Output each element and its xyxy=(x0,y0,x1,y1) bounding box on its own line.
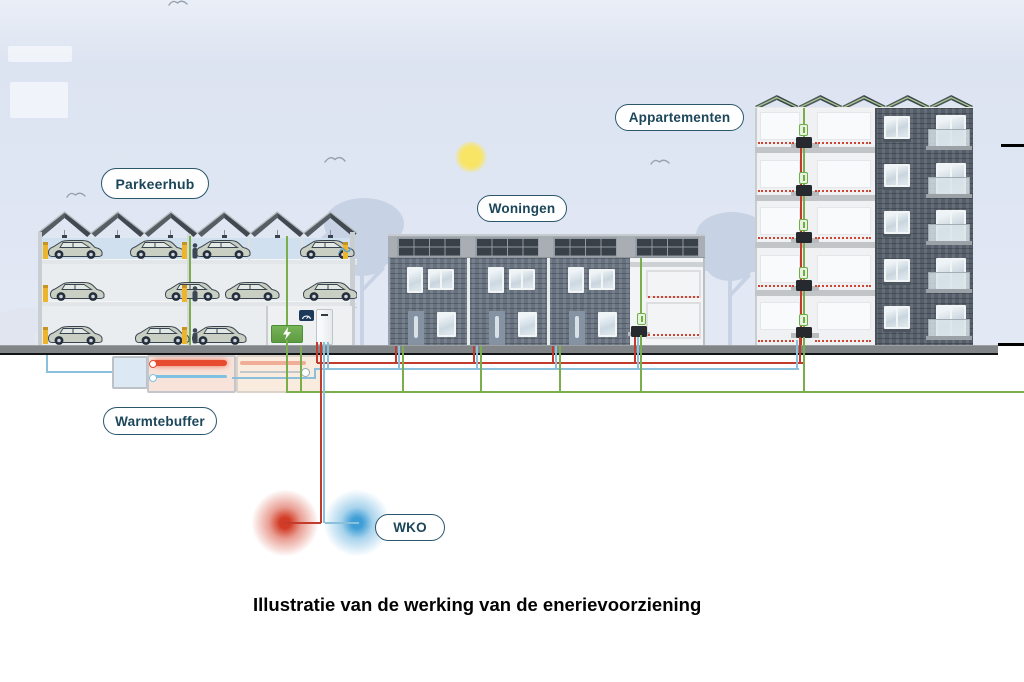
window xyxy=(407,267,423,293)
window-sill xyxy=(883,187,911,190)
label-appartementen: Appartementen xyxy=(615,104,744,131)
cold-pipe xyxy=(398,346,400,369)
solar-panel-array xyxy=(397,237,461,257)
window xyxy=(428,269,454,290)
window xyxy=(568,267,584,293)
cold-pipe xyxy=(796,340,798,369)
solar-panel-array xyxy=(475,237,539,257)
cold-pipe xyxy=(153,375,227,378)
wko-heat-pipe xyxy=(284,522,321,524)
inverter-unit xyxy=(799,314,808,326)
lightning-bolt-icon xyxy=(282,327,292,340)
ev-charger-post xyxy=(43,285,48,302)
electricity-line xyxy=(286,340,288,392)
solar-panel-array xyxy=(553,237,617,257)
balcony-railing xyxy=(928,319,970,337)
house-door xyxy=(408,311,424,345)
person-silhouette xyxy=(191,328,199,344)
wko-cold-pipe xyxy=(325,522,359,524)
heat-pipe xyxy=(473,346,475,363)
interior-window xyxy=(760,207,800,235)
gauge-icon xyxy=(301,312,312,320)
electricity-main-line xyxy=(286,391,1024,393)
heat-pipe xyxy=(316,342,318,363)
facade-edge xyxy=(875,108,877,345)
interior-window xyxy=(760,112,800,140)
caption-title: Illustratie van de werking van de enerie… xyxy=(253,594,701,616)
smart-meter-unit xyxy=(299,310,314,321)
label-parkeerhub: Parkeerhub xyxy=(101,168,209,199)
floor-heating-line xyxy=(758,142,794,144)
inverter-unit xyxy=(799,124,808,136)
label-warmtebuffer: Warmtebuffer xyxy=(103,407,217,435)
cold-pipe xyxy=(327,342,329,369)
ev-charger-post xyxy=(43,327,48,344)
cable-squiggle-icon xyxy=(338,244,352,256)
window xyxy=(884,164,910,187)
balcony-railing xyxy=(928,129,970,147)
label-parkeerhub-text: Parkeerhub xyxy=(115,176,194,192)
heat-pipe xyxy=(799,337,801,363)
floor-heating-line xyxy=(815,237,871,239)
floor-heating-line xyxy=(648,334,699,336)
interior-window xyxy=(817,255,871,283)
energy-system-diagram: Parkeerhub Woningen Appartementen Warmte… xyxy=(0,0,1024,682)
bird-icon xyxy=(66,189,88,200)
facade-edge xyxy=(388,258,390,345)
sun-icon xyxy=(455,141,487,173)
electricity-line xyxy=(300,346,302,392)
heat-pipe-faint xyxy=(240,361,306,365)
ev-charger-post xyxy=(182,242,187,259)
house-door xyxy=(569,311,585,345)
heat-interface-unit xyxy=(796,280,812,291)
cold-pipe xyxy=(555,346,557,369)
balcony-railing xyxy=(928,224,970,242)
window xyxy=(884,306,910,329)
window xyxy=(437,312,456,337)
cold-pipe xyxy=(637,337,639,369)
window-sill xyxy=(883,139,911,142)
window xyxy=(884,116,910,139)
floor-heating-line xyxy=(815,285,871,287)
parking-garage xyxy=(38,206,357,352)
boiler-unit xyxy=(316,309,333,345)
ev-charger-post xyxy=(182,327,187,344)
wko-heat-pipe xyxy=(320,342,322,523)
electricity-line xyxy=(803,337,805,392)
balcony-slab xyxy=(926,146,972,150)
sky-cloud-patch xyxy=(8,46,72,62)
edge-mark xyxy=(998,343,1024,346)
heat-pipe xyxy=(395,346,397,363)
window-sill xyxy=(883,282,911,285)
ev-charger-post xyxy=(43,242,48,259)
label-appartementen-text: Appartementen xyxy=(629,110,731,125)
balcony-railing xyxy=(928,177,970,195)
bird-icon xyxy=(168,0,190,8)
heat-interface-unit xyxy=(796,232,812,243)
heat-interface-unit xyxy=(631,326,647,337)
heat-interface-unit xyxy=(796,137,812,148)
balcony-railing xyxy=(928,272,970,290)
party-wall xyxy=(547,258,550,345)
heat-interface-unit xyxy=(796,185,812,196)
label-woningen-text: Woningen xyxy=(489,201,556,216)
bird-icon xyxy=(324,153,348,165)
floor-heating-line xyxy=(815,190,871,192)
pipe-faint xyxy=(240,371,302,373)
sky-cloud-patch xyxy=(10,82,68,118)
interior-window xyxy=(817,112,871,140)
heat-pipe xyxy=(552,346,554,363)
floor-heating-line xyxy=(815,340,871,342)
balcony-slab xyxy=(926,194,972,198)
house-door xyxy=(489,311,505,345)
ground-line xyxy=(0,345,998,355)
inverter-unit xyxy=(799,172,808,184)
solar-panel-array xyxy=(635,237,699,257)
inverter-unit xyxy=(637,313,646,325)
interior-window xyxy=(760,160,800,188)
window xyxy=(884,259,910,282)
floor-heating-line xyxy=(758,285,794,287)
party-wall xyxy=(467,258,470,345)
heat-pipe xyxy=(634,337,636,363)
edge-mark xyxy=(1001,144,1024,147)
electricity-line xyxy=(402,346,404,392)
electricity-line xyxy=(480,346,482,392)
inverter-unit xyxy=(799,219,808,231)
pipe-endpoint xyxy=(149,374,157,382)
floor-heating-line xyxy=(815,142,871,144)
interior-window xyxy=(817,160,871,188)
cold-pipe xyxy=(314,369,316,379)
interior-window xyxy=(760,302,800,330)
person-silhouette xyxy=(191,286,199,302)
balcony-slab xyxy=(926,241,972,245)
window-sill xyxy=(883,329,911,332)
interior-window xyxy=(760,255,800,283)
label-warmtebuffer-text: Warmtebuffer xyxy=(115,414,205,429)
floor-heating-line xyxy=(758,237,794,239)
interior-window xyxy=(817,207,871,235)
person-silhouette xyxy=(191,243,199,259)
bird-icon xyxy=(650,156,672,167)
electricity-line xyxy=(640,258,642,314)
ev-charger-post xyxy=(182,285,187,302)
label-wko: WKO xyxy=(375,514,445,541)
window-sill xyxy=(883,234,911,237)
heat-pipe xyxy=(153,360,227,366)
electricity-line xyxy=(559,346,561,392)
floor-heating-line xyxy=(648,296,699,298)
floor-heating-line xyxy=(758,190,794,192)
row-houses xyxy=(388,234,705,345)
floor-heating-line xyxy=(758,340,794,342)
balcony-slab xyxy=(926,336,972,340)
interior-window xyxy=(817,302,871,330)
window xyxy=(488,267,504,293)
balcony-slab xyxy=(926,289,972,293)
boiler-vent xyxy=(321,314,328,316)
pipe-endpoint xyxy=(301,368,310,377)
window xyxy=(518,312,537,337)
label-woningen: Woningen xyxy=(477,195,567,222)
window xyxy=(598,312,617,337)
label-wko-text: WKO xyxy=(393,520,427,535)
cold-pipe xyxy=(476,346,478,369)
warmtebuffer-tank-cold xyxy=(112,356,148,389)
electricity-line xyxy=(640,335,642,392)
inverter-unit xyxy=(799,267,808,279)
window xyxy=(884,211,910,234)
cutaway-room xyxy=(646,270,701,298)
apartment-building xyxy=(755,93,973,345)
wko-cold-pipe xyxy=(323,342,325,523)
pipe-endpoint xyxy=(149,360,157,368)
window xyxy=(589,269,615,290)
window xyxy=(509,269,535,290)
